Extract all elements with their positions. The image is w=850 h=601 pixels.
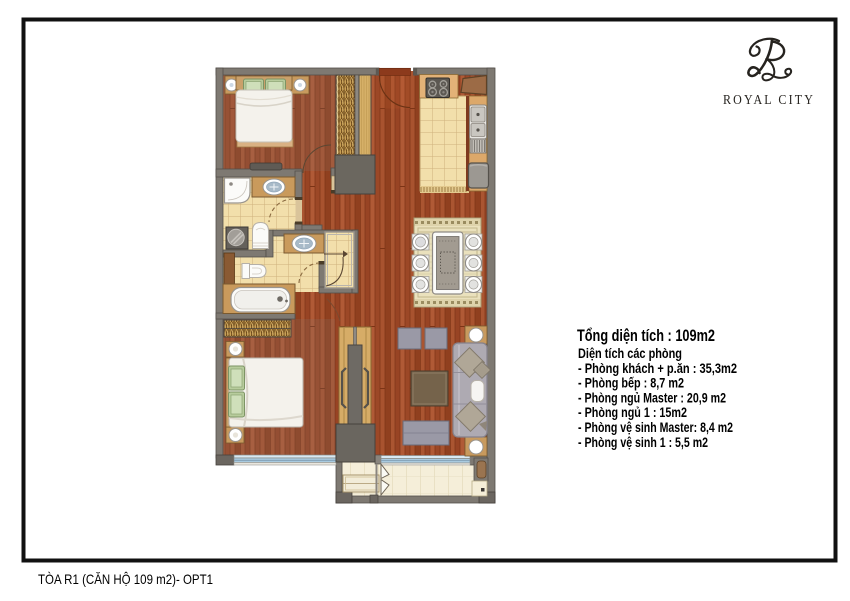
svg-text:- Phòng vệ sinh 1 : 5,5 m2: - Phòng vệ sinh 1 : 5,5 m2 bbox=[578, 435, 708, 450]
svg-text:- Phòng ngủ 1 : 15m2: - Phòng ngủ 1 : 15m2 bbox=[578, 405, 687, 420]
svg-text:- Phòng vệ sinh Master: 8,4 m2: - Phòng vệ sinh Master: 8,4 m2 bbox=[578, 420, 733, 435]
svg-text:Diện tích các phòng: Diện tích các phòng bbox=[578, 346, 682, 361]
svg-text:- Phòng bếp : 8,7 m2: - Phòng bếp : 8,7 m2 bbox=[578, 376, 684, 391]
svg-text:ROYAL CITY: ROYAL CITY bbox=[723, 93, 815, 108]
svg-text:- Phòng ngủ Master : 20,9 m2: - Phòng ngủ Master : 20,9 m2 bbox=[578, 390, 726, 405]
svg-text:- Phòng khách + p.ăn : 35,3m2: - Phòng khách + p.ăn : 35,3m2 bbox=[578, 361, 737, 376]
svg-text:TÒA R1 (CĂN HỘ 109 m2)- OPT1: TÒA R1 (CĂN HỘ 109 m2)- OPT1 bbox=[38, 571, 213, 587]
svg-text:Tổng diện tích : 109m2: Tổng diện tích : 109m2 bbox=[577, 326, 715, 345]
